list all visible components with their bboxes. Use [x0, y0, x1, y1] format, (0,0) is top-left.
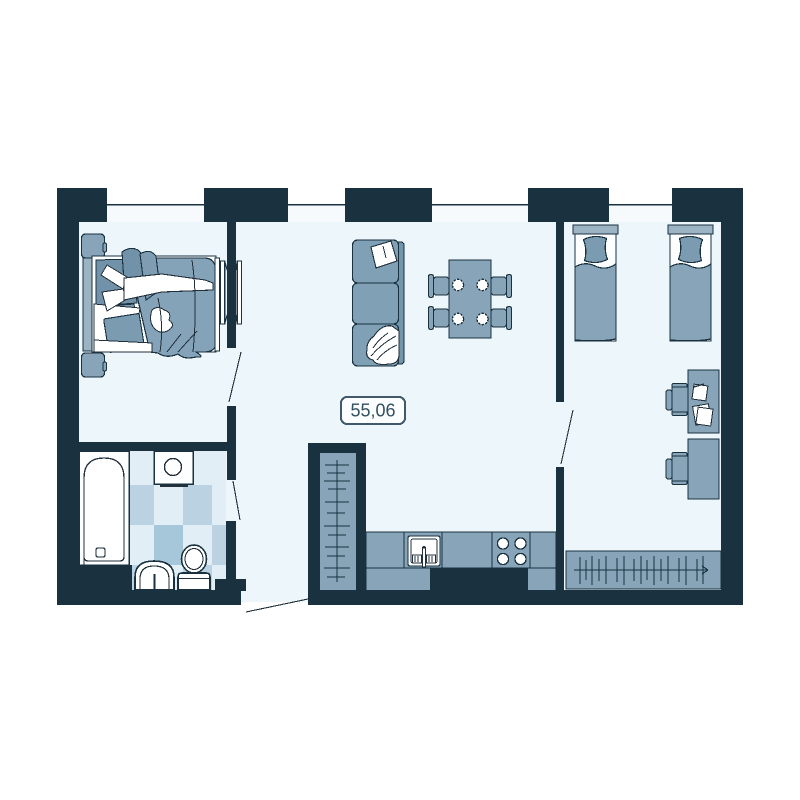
- svg-text:55,06: 55,06: [350, 401, 395, 421]
